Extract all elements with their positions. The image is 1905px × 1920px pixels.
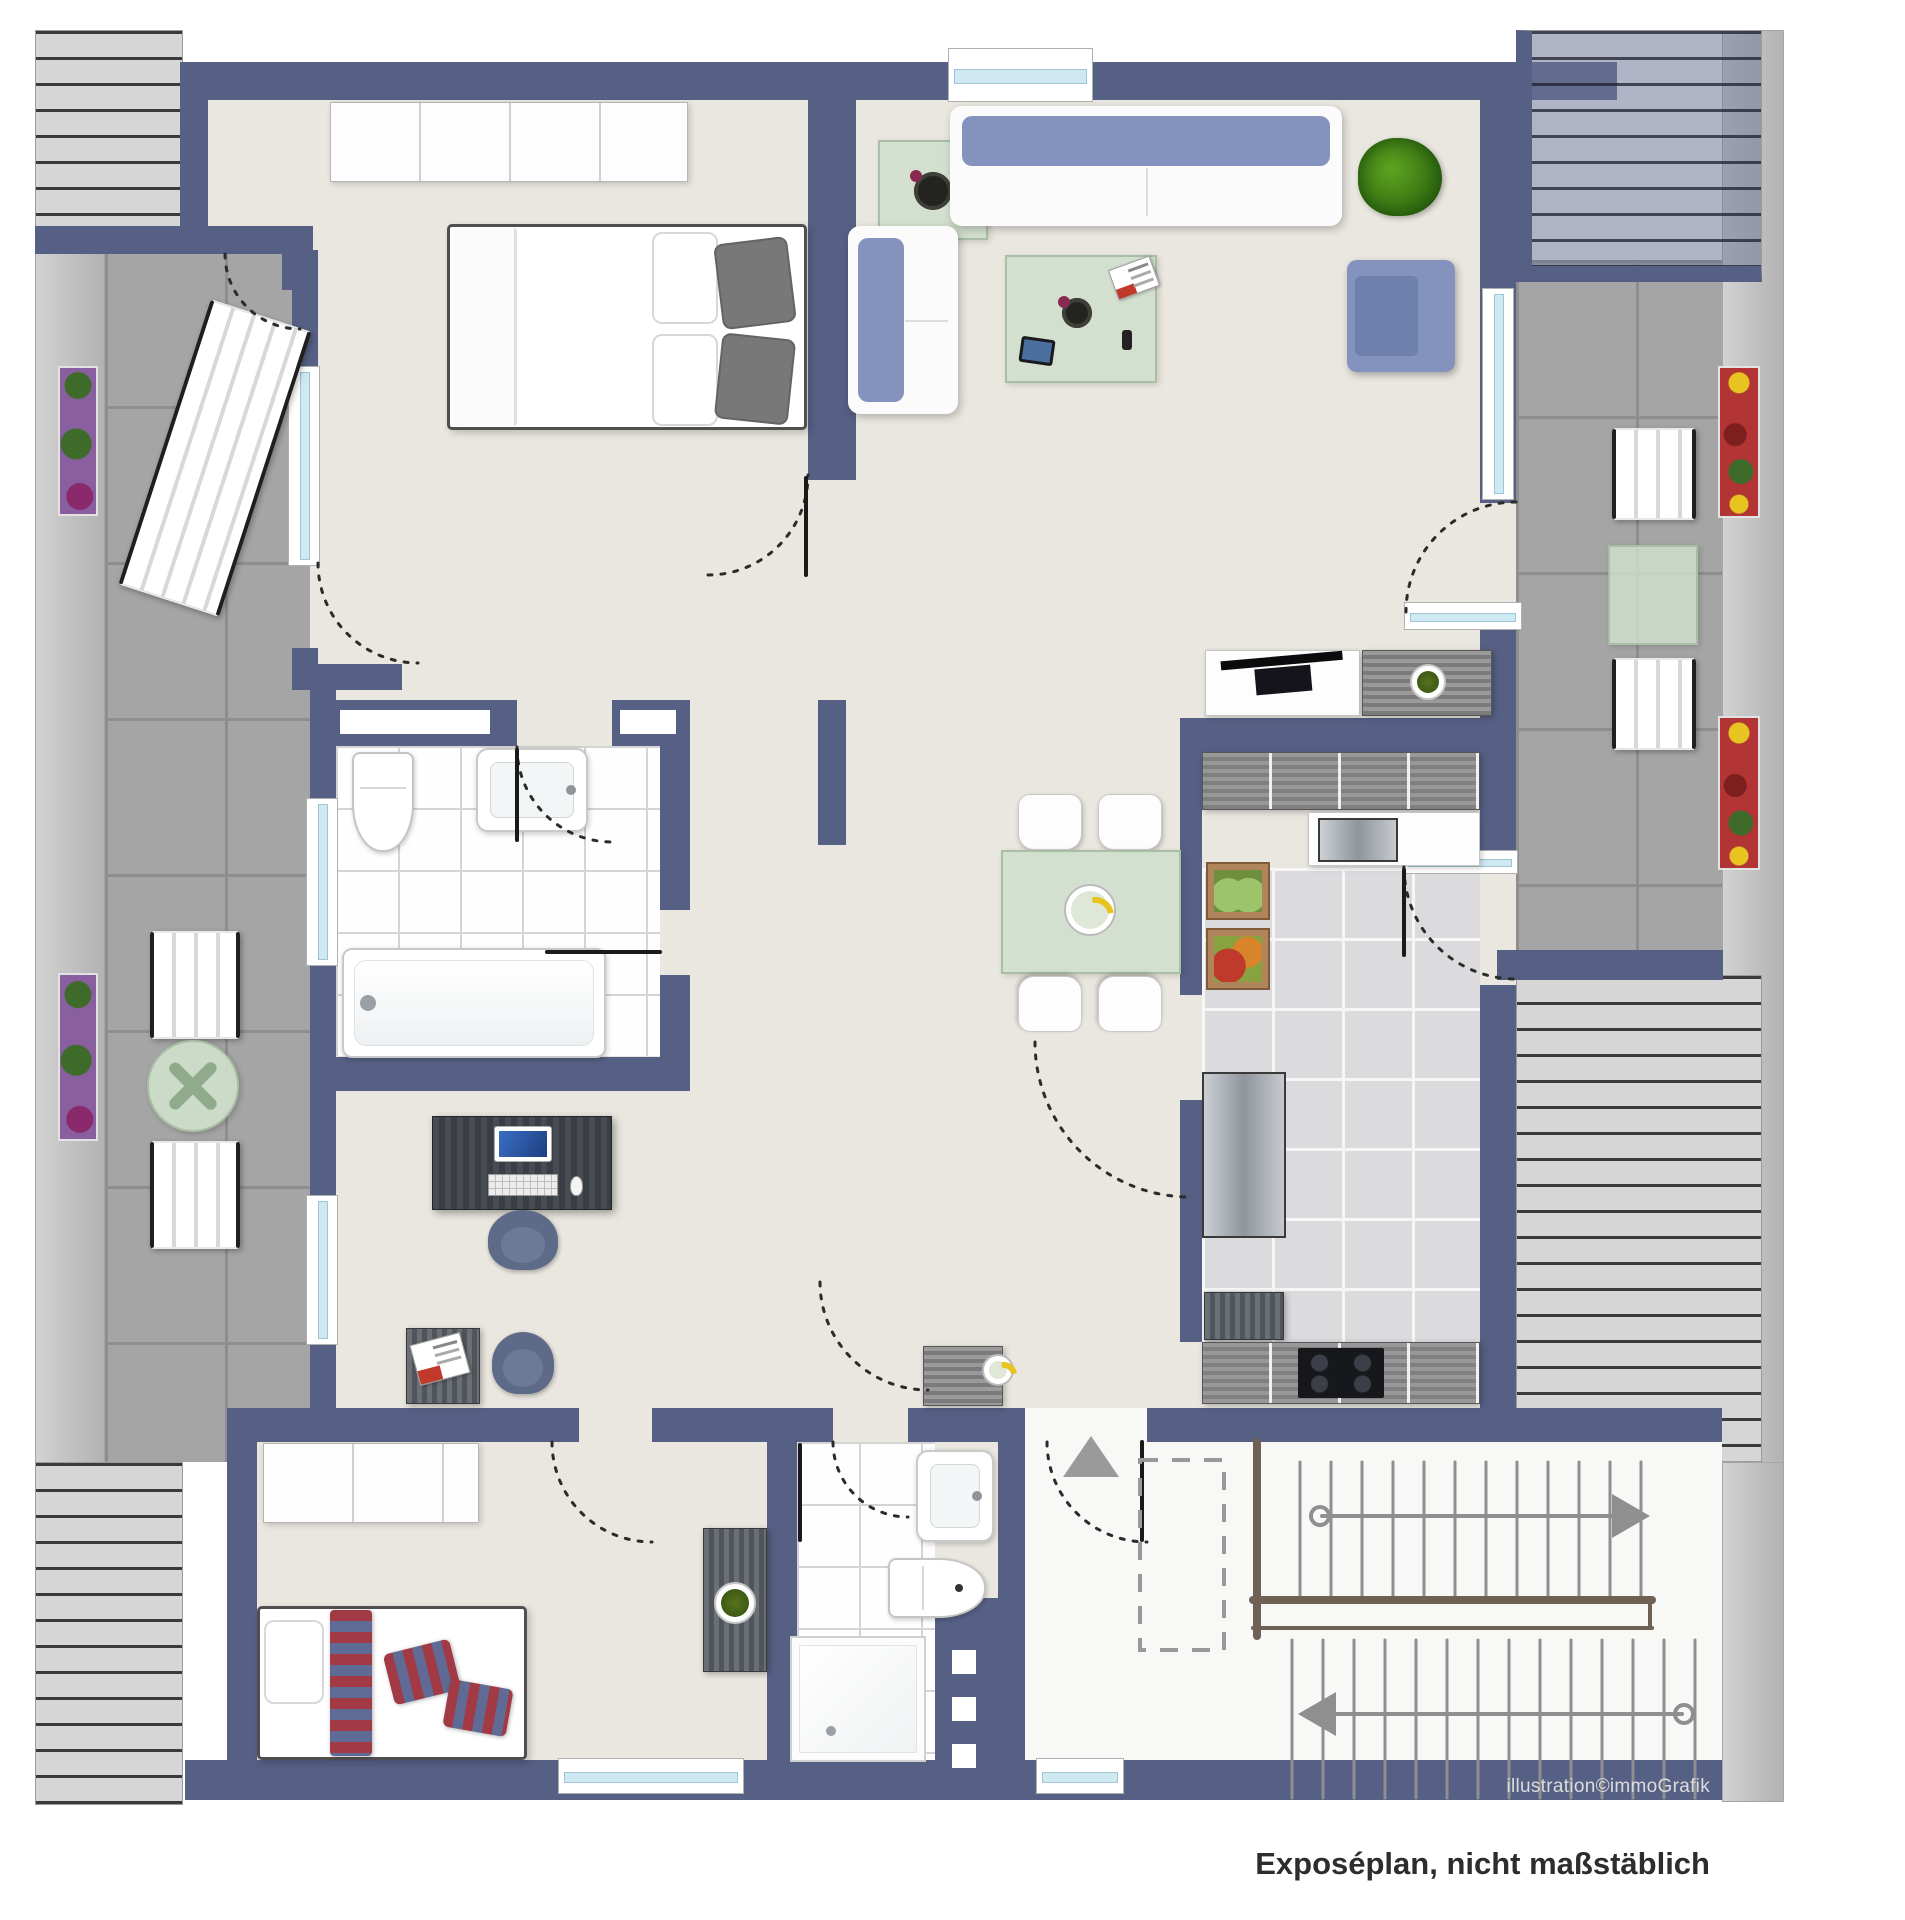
entrance-marker-triangle <box>1063 1436 1119 1477</box>
door-arc-bedroom-terrace <box>318 563 418 663</box>
door-arc-shower <box>833 1442 908 1517</box>
illustration-credit: illustration©immoGrafik <box>1390 1776 1710 1802</box>
stair-arrow-down-head <box>1298 1692 1336 1736</box>
door-arc-living-terrace <box>1406 502 1516 612</box>
door-arc-hall <box>820 1282 928 1390</box>
door-arc-alcove <box>225 254 300 329</box>
door-arc-bedroom <box>708 475 808 575</box>
door-arc-kitchen-hatch <box>1035 1042 1190 1197</box>
plan-caption: Exposéplan, nicht maßstäblich <box>1230 1846 1710 1888</box>
door-arc-bath <box>517 747 612 842</box>
floorplan-canvas: illustration©immoGrafik Exposéplan, nich… <box>0 0 1905 1920</box>
door-arc-kitchen-terrace <box>1404 867 1516 979</box>
vector-overlay <box>0 0 1905 1920</box>
stair-void-outline <box>1140 1460 1224 1650</box>
door-arc-kid <box>552 1442 652 1542</box>
stair-arrow-up-head <box>1612 1494 1650 1538</box>
